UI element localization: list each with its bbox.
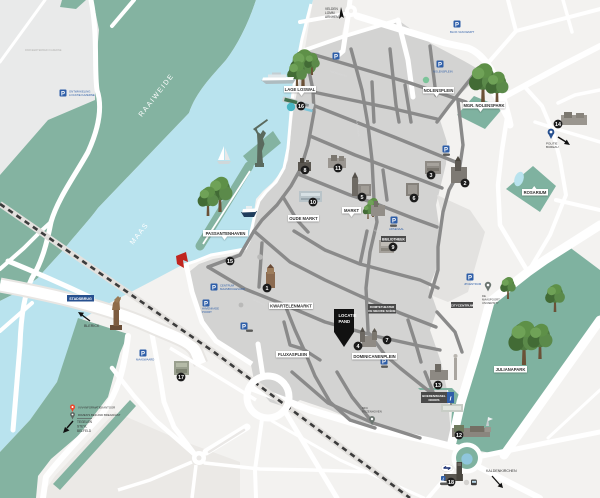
svg-text:NOLENSPLEIN: NOLENSPLEIN bbox=[433, 70, 453, 74]
svg-text:BLERICK: BLERICK bbox=[84, 324, 100, 328]
svg-text:MGR. NOLENSPARK: MGR. NOLENSPARK bbox=[463, 103, 504, 108]
svg-text:LOCATIE KAZERNE: LOCATIE KAZERNE bbox=[69, 93, 95, 97]
svg-text:17: 17 bbox=[178, 375, 184, 381]
svg-text:PARKEERTERREIN KAZERNE: PARKEERTERREIN KAZERNE bbox=[25, 48, 62, 52]
svg-text:JULIANAPARK: JULIANAPARK bbox=[496, 367, 526, 372]
svg-text:STEYL: STEYL bbox=[77, 425, 87, 429]
svg-text:JPCENTRUM: JPCENTRUM bbox=[464, 282, 482, 286]
svg-text:1: 1 bbox=[266, 286, 269, 292]
svg-text:BLOK VAN KEMPT: BLOK VAN KEMPT bbox=[450, 30, 474, 34]
svg-text:16: 16 bbox=[298, 104, 304, 110]
svg-text:11: 11 bbox=[335, 166, 341, 172]
svg-text:PAND: PAND bbox=[339, 319, 351, 324]
svg-text:6: 6 bbox=[413, 196, 416, 202]
svg-text:18: 18 bbox=[448, 480, 454, 486]
svg-text:12: 12 bbox=[456, 433, 462, 439]
svg-text:LOCATIE: LOCATIE bbox=[339, 313, 357, 318]
svg-text:VVV-INFORMATIEKANTOOR: VVV-INFORMATIEKANTOOR bbox=[78, 406, 115, 410]
svg-text:15: 15 bbox=[227, 259, 233, 265]
svg-text:5: 5 bbox=[361, 195, 364, 201]
svg-text:14: 14 bbox=[555, 122, 561, 128]
svg-text:9: 9 bbox=[392, 245, 395, 251]
svg-text:PASSANTENHAVEN: PASSANTENHAVEN bbox=[206, 231, 246, 236]
svg-text:MAASWAARD: MAASWAARD bbox=[136, 358, 154, 362]
svg-text:CITYCENTRUM: CITYCENTRUM bbox=[451, 303, 474, 307]
svg-text:7: 7 bbox=[386, 338, 389, 344]
svg-text:BUREAU: BUREAU bbox=[546, 145, 559, 149]
svg-text:ARSENAAL: ARSENAAL bbox=[389, 227, 404, 231]
svg-text:KALDENKIRCHEN: KALDENKIRCHEN bbox=[486, 469, 517, 473]
svg-text:3: 3 bbox=[430, 173, 433, 179]
svg-text:STADSBRUG: STADSBRUG bbox=[69, 297, 92, 301]
svg-text:DOMINICANENPLEIN: DOMINICANENPLEIN bbox=[353, 354, 395, 359]
svg-text:2: 2 bbox=[464, 181, 467, 187]
svg-text:4: 4 bbox=[357, 344, 360, 350]
svg-text:BELFELD: BELFELD bbox=[77, 429, 92, 433]
svg-text:ROSARIUM: ROSARIUM bbox=[524, 190, 547, 195]
svg-text:i: i bbox=[450, 396, 452, 403]
svg-text:LAGE LOSWAL: LAGE LOSWAL bbox=[285, 87, 316, 92]
svg-text:TEGELEN: TEGELEN bbox=[77, 420, 93, 424]
svg-text:ROZENHOVEN: ROZENHOVEN bbox=[362, 410, 382, 414]
svg-text:NOLENSPLEIN: NOLENSPLEIN bbox=[424, 88, 454, 93]
svg-text:MARKT: MARKT bbox=[344, 208, 360, 213]
svg-text:13: 13 bbox=[435, 383, 441, 389]
svg-text:8: 8 bbox=[304, 168, 307, 174]
svg-text:FLUXASPLEIN: FLUXASPLEIN bbox=[278, 352, 307, 357]
svg-text:UNIVERSITY: UNIVERSITY bbox=[482, 301, 499, 305]
svg-text:MAASBOULEVARD: MAASBOULEVARD bbox=[220, 287, 245, 291]
svg-text:NOORS: NOORS bbox=[428, 398, 439, 402]
svg-text:ROZEN'S BED AND BREAKFAST: ROZEN'S BED AND BREAKFAST bbox=[78, 413, 121, 417]
svg-text:OUDE MARKT: OUDE MARKT bbox=[289, 216, 318, 221]
svg-text:DE NIEUWE SCÈNE: DE NIEUWE SCÈNE bbox=[368, 308, 395, 313]
svg-text:ARNHEM: ARNHEM bbox=[325, 15, 339, 19]
svg-text:KWARTELENMARKT: KWARTELENMARKT bbox=[270, 304, 312, 309]
svg-text:POORT: POORT bbox=[202, 310, 212, 314]
svg-text:BIBLIOTHEEK: BIBLIOTHEEK bbox=[382, 237, 406, 241]
svg-text:10: 10 bbox=[310, 200, 316, 206]
